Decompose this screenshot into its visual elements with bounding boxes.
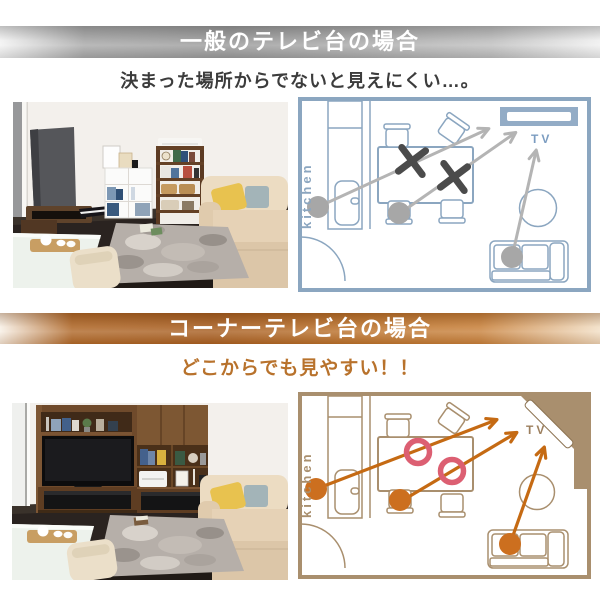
room-photo-2-illustration — [12, 403, 288, 580]
room-photo-1-illustration — [13, 102, 288, 288]
section-1-banner: 一般のテレビ台の場合 — [0, 26, 600, 58]
window — [13, 102, 22, 217]
comparison-infographic: 一般のテレビ台の場合 決まった場所からでないと見えにくい…。 — [0, 0, 600, 600]
dining-chair — [66, 538, 119, 580]
section-1-floor-plan: kitchen TV — [298, 97, 591, 293]
section-1-banner-title: 一般のテレビ台の場合 — [180, 29, 420, 54]
kitchen-label: kitchen — [299, 451, 314, 518]
plan-sofa — [488, 530, 568, 568]
flat-tv — [30, 127, 76, 212]
floor-plan-2: kitchen TV — [298, 392, 591, 579]
section-2-banner: コーナーテレビ台の場合 — [0, 313, 600, 344]
walnut-bookshelf — [156, 138, 204, 224]
kitchen-label: kitchen — [299, 162, 314, 229]
section-2-banner-title: コーナーテレビ台の場合 — [168, 316, 432, 341]
tv-unit — [500, 107, 578, 126]
shaggy-rug — [96, 515, 244, 577]
dining-chair — [68, 245, 121, 288]
section-2-floor-plan: kitchen TV — [298, 392, 591, 579]
corner-tv-wall-unit — [36, 405, 208, 513]
plan-sofa — [490, 241, 568, 282]
section-2-subtitle: どこからでも見やすい！！ — [0, 353, 600, 380]
section-1-room-photo — [13, 102, 288, 288]
window — [12, 403, 25, 506]
shaggy-rug — [99, 223, 249, 284]
tv-label: TV — [531, 132, 552, 146]
section-1-subtitle: 決まった場所からでないと見えにくい…。 — [0, 67, 600, 93]
section-2-room-photo — [12, 403, 288, 580]
floor-plan-1: kitchen TV — [298, 97, 591, 293]
wall-stub — [574, 449, 587, 489]
tv-label: TV — [526, 423, 547, 437]
